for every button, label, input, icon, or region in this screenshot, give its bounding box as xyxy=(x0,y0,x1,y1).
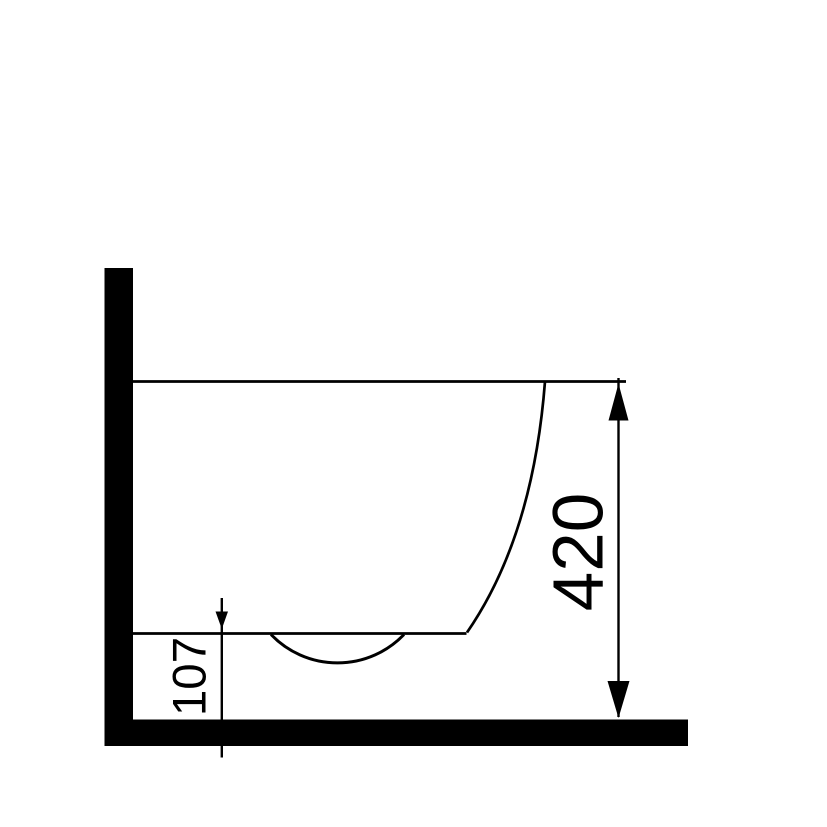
svg-text:420: 420 xyxy=(540,493,619,611)
svg-text:107: 107 xyxy=(164,637,217,716)
